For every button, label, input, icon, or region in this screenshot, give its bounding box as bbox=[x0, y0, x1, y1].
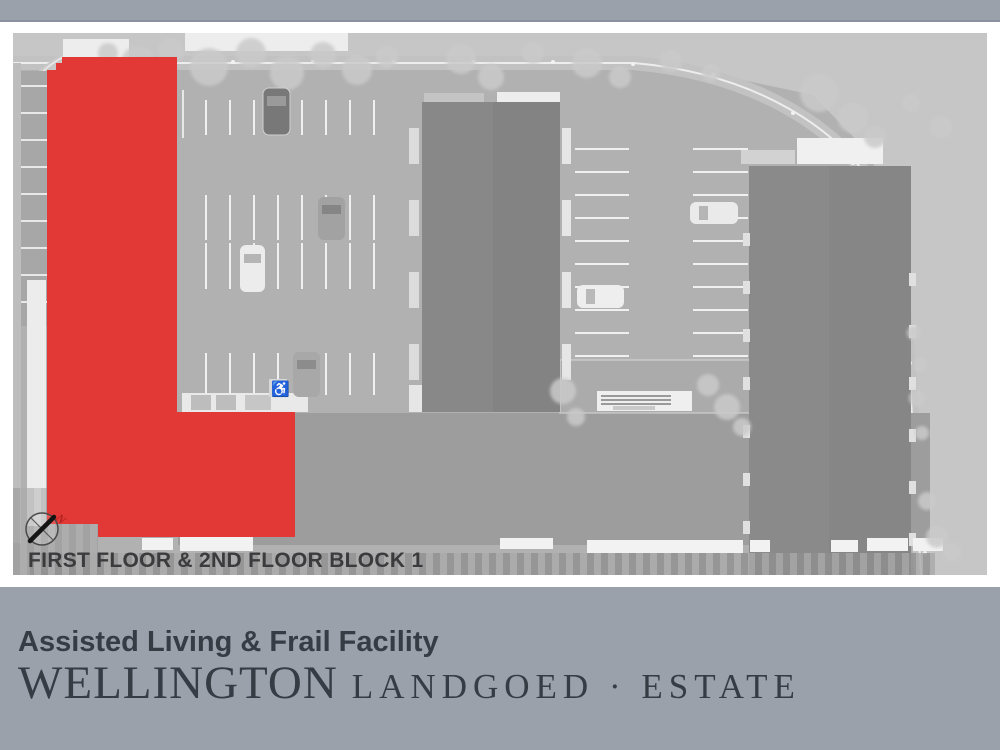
car bbox=[240, 245, 265, 292]
accessible-parking-icon: ♿ bbox=[269, 379, 290, 398]
top-border-band bbox=[0, 0, 1000, 22]
footer-band: Assisted Living & Frail Facility WELLING… bbox=[0, 587, 1000, 750]
car bbox=[577, 285, 624, 308]
middle-building bbox=[409, 92, 571, 412]
car bbox=[690, 202, 738, 224]
brand-primary: WELLINGTON bbox=[18, 660, 338, 707]
brand-secondary: LANDGOED · ESTATE bbox=[352, 669, 801, 704]
car bbox=[293, 352, 320, 397]
svg-text:♿: ♿ bbox=[271, 380, 290, 398]
car bbox=[318, 197, 345, 240]
plan-caption: FIRST FLOOR & 2ND FLOOR BLOCK 1 bbox=[28, 549, 423, 573]
car bbox=[263, 88, 290, 135]
right-building bbox=[741, 138, 916, 575]
brand-line: WELLINGTON LANDGOED · ESTATE bbox=[18, 660, 1000, 707]
site-plan-panel: ♿ N FIRST FLOOR & 2ND FLOOR BLOCK 1 bbox=[13, 33, 987, 575]
site-plan-rendering: ♿ N bbox=[13, 33, 987, 575]
facility-subtitle: Assisted Living & Frail Facility bbox=[18, 627, 1000, 657]
